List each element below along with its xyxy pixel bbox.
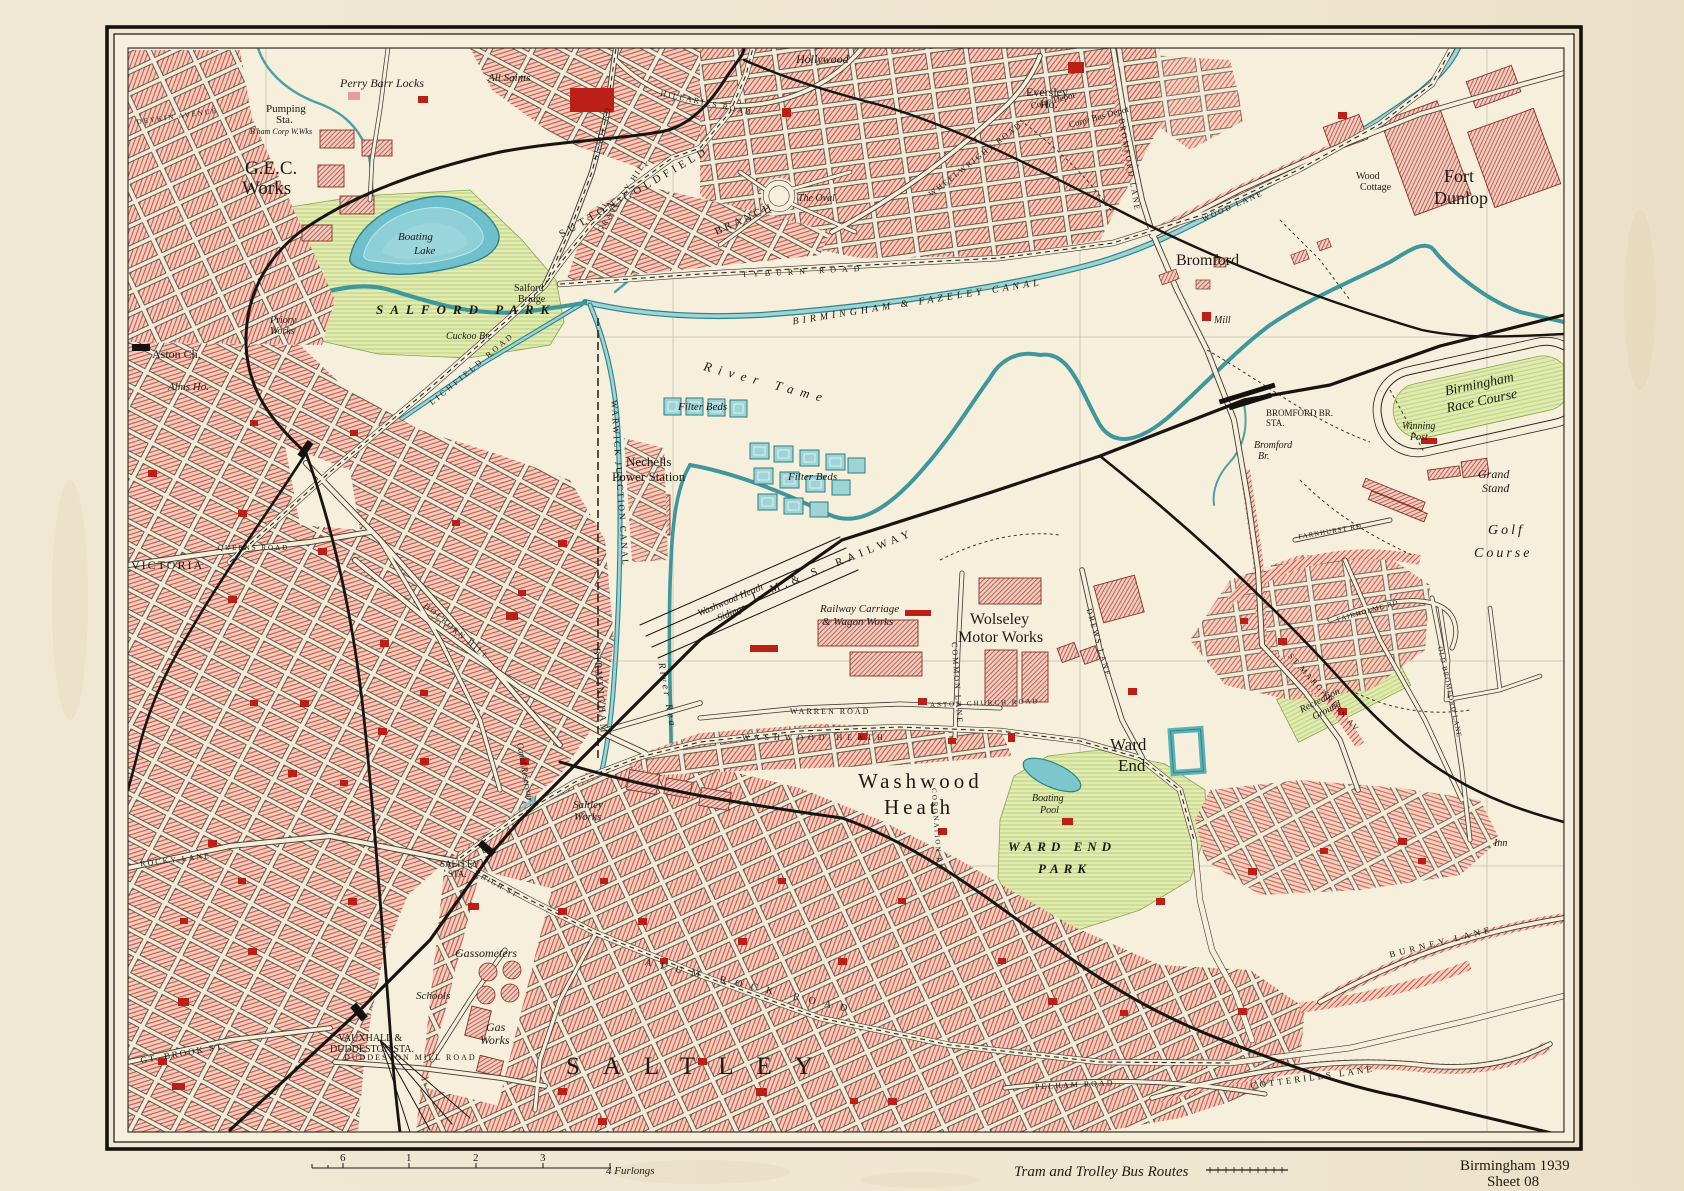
svg-text:1: 1 xyxy=(406,1152,412,1164)
svg-text:Works: Works xyxy=(270,326,295,337)
svg-text:Wolseley: Wolseley xyxy=(970,611,1029,628)
svg-text:Works: Works xyxy=(574,811,601,823)
svg-text:Alms Ho.: Alms Ho. xyxy=(167,381,209,393)
svg-text:Lake: Lake xyxy=(413,245,436,257)
svg-text:Perry Barr Locks: Perry Barr Locks xyxy=(339,76,424,90)
svg-text:Boating: Boating xyxy=(1032,793,1064,804)
svg-text:Inn: Inn xyxy=(1493,838,1507,849)
svg-text:STA.: STA. xyxy=(1266,418,1285,428)
svg-text:Works: Works xyxy=(480,1033,510,1047)
svg-text:Washwood: Washwood xyxy=(858,769,983,793)
svg-text:Hollywood: Hollywood xyxy=(795,52,850,66)
svg-text:Pool: Pool xyxy=(1039,805,1059,816)
svg-text:Tram and Trolley Bus Routes: Tram and Trolley Bus Routes xyxy=(1014,1164,1189,1180)
svg-text:Bromford: Bromford xyxy=(1254,440,1293,451)
svg-text:The Oval: The Oval xyxy=(798,193,835,204)
svg-text:Br.: Br. xyxy=(1258,451,1269,462)
svg-text:Schools: Schools xyxy=(416,990,450,1002)
svg-text:VICTORIA: VICTORIA xyxy=(131,558,204,572)
svg-text:B'ham Corp W.Wks: B'ham Corp W.Wks xyxy=(250,127,312,136)
svg-text:Course: Course xyxy=(1474,546,1532,561)
svg-text:Ward: Ward xyxy=(1110,735,1147,754)
svg-text:Sta.: Sta. xyxy=(276,114,293,126)
svg-text:WASHWOOD HEATH: WASHWOOD HEATH xyxy=(742,733,888,742)
svg-text:Post: Post xyxy=(1409,432,1428,443)
svg-text:4 Furlongs: 4 Furlongs xyxy=(606,1165,655,1177)
svg-text:Cuckoo Br.: Cuckoo Br. xyxy=(446,331,490,342)
svg-text:Wood: Wood xyxy=(1356,171,1380,182)
svg-text:End: End xyxy=(1118,756,1146,775)
svg-text:Grand: Grand xyxy=(1478,467,1510,481)
svg-text:BROMFORD BR.: BROMFORD BR. xyxy=(1266,408,1333,418)
svg-text:Aston Ch.: Aston Ch. xyxy=(152,347,201,361)
svg-text:Cottage: Cottage xyxy=(1360,182,1392,193)
svg-text:Sheet 08: Sheet 08 xyxy=(1487,1174,1539,1190)
svg-text:Salford: Salford xyxy=(514,283,543,294)
svg-text:STA.: STA. xyxy=(448,869,467,879)
svg-text:All Saints: All Saints xyxy=(487,72,530,84)
svg-text:QUEENS ROAD: QUEENS ROAD xyxy=(218,544,289,552)
svg-text:VAUXHALL &: VAUXHALL & xyxy=(338,1033,402,1044)
svg-text:Filter Beds: Filter Beds xyxy=(787,471,837,483)
svg-text:WARREN ROAD: WARREN ROAD xyxy=(790,707,870,716)
svg-text:Railway Carriage: Railway Carriage xyxy=(819,603,899,615)
svg-text:6: 6 xyxy=(340,1152,346,1164)
svg-text:Saltley: Saltley xyxy=(573,799,603,811)
svg-text:SALFORD PARK: SALFORD PARK xyxy=(376,302,556,317)
svg-text:WARD END: WARD END xyxy=(1008,839,1116,854)
svg-text:Works: Works xyxy=(242,178,291,199)
svg-text:Priory: Priory xyxy=(269,315,297,326)
svg-text:Fort: Fort xyxy=(1444,166,1474,186)
svg-text:DUDDESTON MILL ROAD: DUDDESTON MILL ROAD xyxy=(344,1053,477,1062)
svg-text:3: 3 xyxy=(540,1152,546,1164)
svg-text:SALTLEY: SALTLEY xyxy=(440,859,480,869)
svg-text:& Wagon Works: & Wagon Works xyxy=(822,616,893,628)
svg-text:Bromford: Bromford xyxy=(1176,252,1239,269)
svg-text:Birmingham 1939: Birmingham 1939 xyxy=(1460,1158,1570,1174)
svg-text:Nechells: Nechells xyxy=(626,454,671,469)
svg-text:SALTLEY: SALTLEY xyxy=(566,1053,836,1080)
svg-text:Dunlop: Dunlop xyxy=(1434,188,1488,208)
svg-text:Golf: Golf xyxy=(1488,523,1525,538)
svg-text:Filter Beds: Filter Beds xyxy=(677,401,727,413)
svg-text:G.E.C.: G.E.C. xyxy=(245,158,297,179)
svg-text:Gas: Gas xyxy=(486,1020,506,1034)
svg-text:Gassometers: Gassometers xyxy=(455,946,517,960)
svg-text:Motor Works: Motor Works xyxy=(958,629,1043,646)
svg-text:PARK: PARK xyxy=(1038,861,1091,876)
svg-text:Boating: Boating xyxy=(398,231,433,243)
svg-text:Winning: Winning xyxy=(1402,421,1435,432)
svg-text:2: 2 xyxy=(473,1152,479,1164)
svg-text:Heath: Heath xyxy=(884,795,954,819)
svg-text:Mill: Mill xyxy=(1213,315,1231,326)
svg-text:Stand: Stand xyxy=(1482,481,1510,495)
